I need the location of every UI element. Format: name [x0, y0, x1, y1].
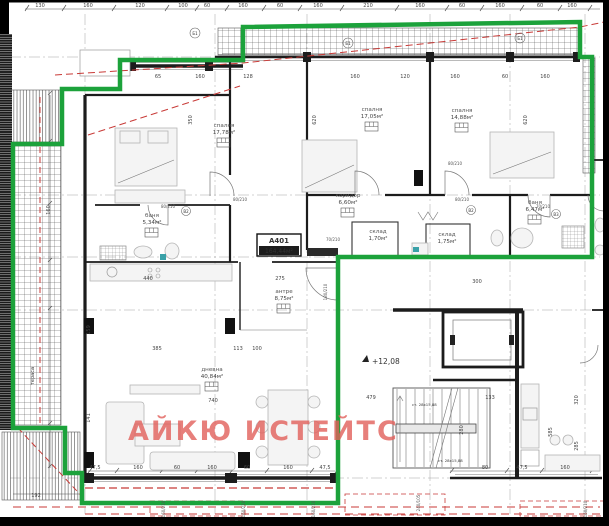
dim-label: 479: [366, 395, 376, 401]
dim-label: 133: [485, 395, 495, 401]
axis-bubble: В3: [553, 212, 559, 217]
dim-label: 141: [86, 413, 92, 423]
dim-label: 100: [178, 3, 188, 9]
dim-label: 128: [243, 74, 253, 80]
room-area: 17,78м²: [213, 129, 235, 136]
floor-plan-screenshot: тераса спалня 17,78м² спалня 17,05м² спа…: [0, 0, 609, 526]
room-label: антре: [275, 289, 293, 295]
dim-label: 160: [283, 465, 293, 471]
dim-label: 280: [459, 425, 465, 435]
dim-label: 160: [540, 74, 550, 80]
top-terrace-hatch: [218, 28, 578, 55]
dim-label: 113: [233, 346, 243, 352]
dim-label: 160: [195, 74, 205, 80]
room-label: дневна: [201, 367, 222, 373]
dim-label: 47,5: [516, 465, 527, 471]
room-area: 8,75м²: [275, 295, 294, 302]
room-label: баня: [145, 213, 159, 219]
dim-label: 160: [83, 3, 93, 9]
dim-label: 160: [350, 74, 360, 80]
apartment-code: А401: [269, 237, 289, 245]
dim-label: 60: [204, 3, 210, 9]
dim-label: 160: [207, 465, 217, 471]
dim-label: 160: [133, 465, 143, 471]
room-area: 40,84м²: [201, 373, 223, 380]
dim-label: 160: [415, 3, 425, 9]
dim-label: 130: [35, 3, 45, 9]
window-label: 160/210: [241, 500, 246, 517]
axis-bubble: Б1: [192, 31, 198, 36]
room-label: коридор: [336, 193, 361, 199]
dim-label: 60: [537, 3, 543, 9]
window-label: 160/210: [161, 500, 166, 517]
dim-label: 192: [31, 493, 41, 499]
level-value: +12,08: [372, 357, 400, 366]
dim-label: 210: [363, 3, 373, 9]
dim-label: 620: [523, 115, 529, 125]
room-area: 1,75м²: [438, 238, 457, 245]
terrace-note: тераса: [30, 367, 36, 385]
bottom-left-terrace: [2, 432, 80, 500]
dim-label: 100: [252, 346, 262, 352]
room-label: спалня: [452, 108, 473, 114]
level-mark: +12,08: [362, 355, 400, 366]
apartment-code-box: А401 164,44м²: [257, 234, 301, 256]
window-label: 160/210: [311, 500, 316, 517]
dim-label: 285: [574, 441, 580, 451]
dim-label: 160: [567, 3, 577, 9]
dim-label: 620: [312, 115, 318, 125]
floor-plan-svg: тераса спалня 17,78м² спалня 17,05м² спа…: [0, 0, 609, 526]
door-label: 80/210: [161, 204, 176, 209]
room-label: склад: [438, 232, 455, 238]
dim-label: 160: [46, 205, 52, 215]
dim-label: 60: [174, 465, 180, 471]
dim-label: 275: [275, 276, 285, 282]
room-label: склад: [369, 229, 386, 235]
dim-label: 160: [450, 74, 460, 80]
left-terrace-hatch: [14, 146, 61, 425]
dim-label: 60: [244, 465, 250, 471]
room-area: 6,60м²: [339, 199, 358, 206]
stair-note: ст. 28х15,88: [412, 402, 437, 407]
room-area: 1,70м²: [369, 235, 388, 242]
dim-label: 160: [495, 3, 505, 9]
dim-label: 385: [152, 346, 162, 352]
dim-label: 47,5: [89, 465, 100, 471]
room-area: 5,34м²: [143, 219, 162, 226]
dim-label: 160: [238, 3, 248, 9]
dim-label: 350: [188, 115, 194, 125]
room-area: 14,88м²: [451, 114, 473, 121]
dim-label: 320: [574, 395, 580, 405]
door-label: 70/210: [536, 204, 551, 209]
dim-label: 159: [86, 325, 92, 335]
dim-label: 60: [277, 3, 283, 9]
left-edge-strip: [0, 34, 12, 430]
door-label: 70/210: [326, 237, 341, 242]
door-label: 180/210: [323, 283, 328, 300]
room-label: спалня: [362, 107, 383, 113]
apartment-area: 164,44м²: [265, 248, 294, 255]
dim-label: 300: [472, 279, 482, 285]
dim-label: 120: [135, 3, 145, 9]
dim-label: 60: [459, 3, 465, 9]
door-label: 80/210: [448, 161, 463, 166]
dim-label: 80: [482, 465, 488, 471]
stair-note: ст. 28х15,88: [438, 458, 463, 463]
stair-core: [393, 310, 523, 478]
dim-label: 65: [155, 74, 161, 80]
axis-bubble: В2: [183, 209, 189, 214]
window-label: 240/105: [416, 494, 421, 511]
dim-label: 160: [313, 3, 323, 9]
axis-bubble: Б1: [345, 41, 351, 46]
agency-watermark: АЙКЮ ИСТЕЙТС: [128, 415, 399, 447]
door-label: 80/210: [455, 197, 470, 202]
axis-bubble: Б1: [517, 36, 523, 41]
dim-label: 120: [400, 74, 410, 80]
dim-label: 740: [208, 398, 218, 404]
axis-bubble: В2: [468, 208, 474, 213]
room-area: 17,05м²: [361, 113, 383, 120]
room-label: спалня: [214, 123, 235, 129]
dim-label: 585: [548, 427, 554, 437]
dim-label: 47,5: [319, 465, 330, 471]
window-label: 160/210: [583, 500, 588, 517]
dim-label: 440: [143, 276, 153, 282]
dim-label: 160: [560, 465, 570, 471]
dim-label: 60: [502, 74, 508, 80]
door-label: 80/210: [233, 197, 248, 202]
